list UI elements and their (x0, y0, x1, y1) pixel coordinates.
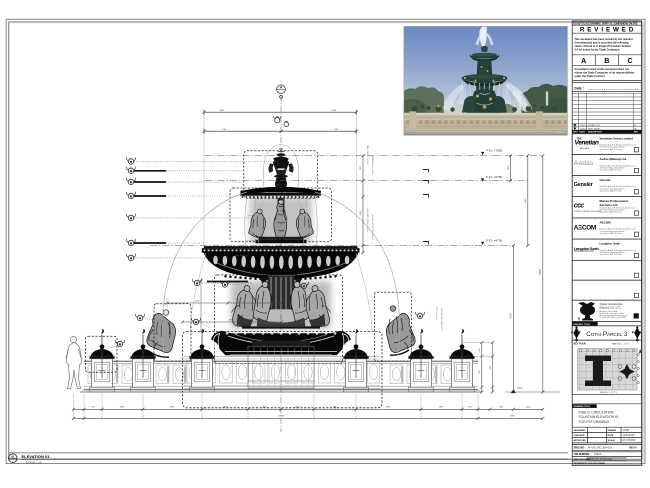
svg-text:INIT.: INIT. (634, 132, 639, 134)
svg-text:TOP OF CROWN FINIAL: TOP OF CROWN FINIAL (367, 145, 370, 165)
svg-text:Langdon Seah: Langdon Seah (574, 246, 600, 251)
svg-text:ELEVATION 01: ELEVATION 01 (22, 454, 51, 459)
svg-text:RYU8_PD_BV-001: RYU8_PD_BV-001 (588, 445, 613, 449)
svg-text:CHECKED: CHECKED (574, 435, 585, 437)
svg-text:1500: 1500 (490, 366, 492, 370)
svg-text:THE: THE (577, 137, 582, 141)
svg-text:Venetian: Venetian (575, 140, 599, 147)
svg-text:A: A (581, 58, 586, 65)
svg-text:Venetian Orient Limited: Venetian Orient Limited (600, 136, 634, 140)
svg-text:Gensler: Gensler (574, 182, 594, 188)
svg-text:1840: 1840 (508, 165, 510, 171)
svg-text:PARCEL 1 , LOT 2: PARCEL 1 , LOT 2 (612, 342, 631, 345)
svg-text:31323: 31323 (594, 453, 602, 456)
svg-text:TOP OF MIDDLE BASIN RIM: TOP OF MIDDLE BASIN RIM (367, 208, 370, 232)
svg-text:4730: 4730 (510, 313, 513, 319)
svg-text:5.4 for action by the Trade Co: 5.4 for action by the Trade Contractor. (574, 47, 620, 51)
svg-text:This document has been revised: This document has been revised by the re… (574, 37, 632, 41)
svg-text:01: 01 (11, 454, 15, 458)
svg-text:DESCRIPTION: DESCRIPTION (588, 132, 602, 134)
svg-text:ccc: ccc (574, 203, 585, 210)
svg-text:PUBLIC CIRCULATION: PUBLIC CIRCULATION (579, 411, 615, 415)
svg-text:AS SHOWN: AS SHOWN (622, 439, 635, 442)
svg-text:Y: Y (578, 317, 581, 322)
svg-text:1496: 1496 (219, 110, 225, 112)
svg-text:TYPE FW-BN-01: TYPE FW-BN-01 (247, 241, 260, 243)
svg-text:PARCEL 1 , LOT 3: PARCEL 1 , LOT 3 (600, 391, 618, 394)
svg-text:Consultant review of this do: Consultant review of this document does … (574, 67, 629, 71)
svg-text:DATE: DATE (608, 434, 614, 437)
svg-text:Date :: Date : (574, 86, 583, 90)
svg-text:450: 450 (479, 348, 481, 351)
svg-text:APPROVED: APPROVED (574, 439, 587, 442)
svg-text:Aedas: Aedas (574, 160, 594, 167)
svg-text:1496: 1496 (331, 110, 337, 112)
svg-text:© photo: © photo (555, 131, 563, 134)
svg-text:ISSUED FOR...: ISSUED FOR... (588, 125, 602, 127)
svg-text:Consultants(s) and is accorded: Consultants(s) and is accorded the follo… (574, 41, 629, 45)
svg-text:No.409, Edf. China Law, 21 and: No.409, Edf. China Law, 21 andar (600, 313, 624, 315)
svg-text:DRAWN: DRAWN (608, 429, 617, 432)
svg-text:Aedas (Macau) Ltd.: Aedas (Macau) Ltd. (600, 157, 628, 161)
svg-text:COTAI PARCEL 3: COTAI PARCEL 3 (586, 331, 628, 338)
svg-text:SCALE 1:25: SCALE 1:25 (26, 460, 42, 464)
svg-text:TOP OF SCULPTURE GROUP: TOP OF SCULPTURE GROUP (373, 214, 375, 240)
svg-text:JOB NUMBER :: JOB NUMBER : (574, 454, 591, 456)
svg-text:TYPE: FW-CB-01: TYPE: FW-CB-01 (437, 306, 439, 320)
svg-text:under the Trade Contract.: under the Trade Contract. (574, 74, 605, 78)
svg-text:12/04/2016: 12/04/2016 (622, 434, 635, 437)
svg-text:Gensler: Gensler (600, 178, 612, 182)
svg-text:930: 930 (479, 370, 481, 373)
svg-text:7600: 7600 (539, 269, 542, 275)
svg-text:FOUNTAIN ELEVATION 01: FOUNTAIN ELEVATION 01 (579, 415, 619, 419)
svg-text:KEY PLAN: KEY PLAN (574, 342, 586, 345)
svg-text:FOR FSF DRAWING: FOR FSF DRAWING (579, 420, 610, 424)
svg-text:DO NOT SCALE DRAWING. VERIFY A: DO NOT SCALE DRAWING. VERIFY ALL DIMENSI… (573, 22, 638, 25)
svg-text:Langdon Seah: Langdon Seah (600, 242, 621, 246)
svg-text:R E V I E W E D: R E V I E W E D (580, 27, 634, 34)
svg-text:Services Ltd.: Services Ltd. (600, 203, 619, 207)
svg-text:CONCEPT CONSTRUCTION CONSULT: CONCEPT CONSTRUCTION CONSULT (574, 211, 601, 213)
svg-text:AΞCOM: AΞCOM (574, 225, 596, 232)
svg-text:AECOM: AECOM (600, 221, 612, 225)
svg-text:REV.: REV. (573, 132, 578, 134)
svg-text:F.F.L +5760: F.F.L +5760 (486, 175, 502, 179)
svg-text:DESIGNED: DESIGNED (574, 430, 586, 432)
svg-text:CHAD: CHAD (622, 429, 629, 432)
svg-text:M A C A O: M A C A O (580, 147, 590, 150)
svg-text:-: - (281, 90, 282, 94)
svg-text:DATE: DATE (580, 131, 586, 134)
svg-text:Tel: (853) 2837 3838 Fax: 283: Tel: (853) 2837 3838 Fax: 2837 3839 (600, 317, 626, 319)
svg-text:-: - (12, 460, 13, 463)
svg-text:17135: 17135 (278, 416, 285, 418)
svg-text:2890: 2890 (525, 198, 527, 204)
svg-text:AL: AL (635, 124, 637, 127)
svg-text:REFERENCE CAD FILE NAME: REFERENCE CAD FILE NAME (574, 462, 606, 465)
svg-text:DRAWING TITLE: DRAWING TITLE (574, 405, 591, 408)
svg-text:Youke Construction: Youke Construction (600, 302, 624, 306)
svg-text:SCALE: SCALE (608, 439, 616, 442)
svg-text:F.F.L.: F.F.L. (518, 386, 524, 390)
svg-text:TOP OF UPPER BASIN: TOP OF UPPER BASIN (372, 155, 375, 175)
svg-text:TYPE FW-SC-01: TYPE FW-SC-01 (235, 256, 248, 258)
svg-text:relieve the Trade Contractor: relieve the Trade Contractor of its resp… (574, 71, 635, 75)
svg-text:F.F.L +7600: F.F.L +7600 (486, 149, 502, 153)
svg-text:B: B (604, 58, 609, 65)
svg-text:REV 0: REV 0 (630, 446, 638, 449)
svg-text:FOUNTAIN DISPLAY ZONE: FOUNTAIN DISPLAY ZONE (441, 307, 444, 330)
svg-text:TYPE FW-SC-02: TYPE FW-SC-02 (247, 216, 260, 218)
svg-text:F.F.L +4730: F.F.L +4730 (486, 238, 502, 242)
svg-text:DWG NO :: DWG NO : (574, 446, 586, 449)
svg-text:status referred to in Projec: status referred to in Project Procedure … (574, 44, 631, 48)
svg-text:C: C (627, 58, 632, 65)
svg-text:12/04/16: 12/04/16 (580, 125, 587, 127)
svg-text:(Macau) CO. LTD.: (Macau) CO. LTD. (600, 305, 622, 309)
